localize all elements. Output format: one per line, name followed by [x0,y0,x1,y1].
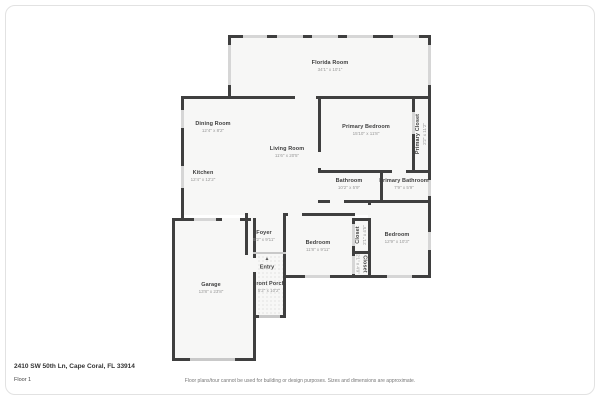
room-label-florida-room: Florida Room 34'1" x 10'1" [312,60,349,73]
door-opening [288,213,302,216]
door-opening [330,200,344,203]
room-label-bedroom-center: Bedroom 11'8" x 9'11" [306,240,331,253]
window-segment [243,35,267,38]
window-segment [228,45,231,85]
room-label-primary-closet: Primary Closet 2'2" x 11'2" [415,114,428,154]
window-segment [181,110,184,128]
door-opening [295,96,316,99]
window-segment [428,45,431,85]
room-label-kitchen: Kitchen 12'4" x 12'2" [191,170,216,183]
door-opening [392,170,406,173]
door-line [259,315,280,318]
room-label-front-porch: Front Porch 5'2" x 10'2" [253,281,285,294]
window-segment [387,275,412,278]
room-label-foyer: Foyer 5'2" x 9'11" [253,230,275,243]
room-label-primary-bathroom: Primary Bathroom 7'9" x 5'9" [379,178,429,191]
room-label-entry: Entry [260,265,275,272]
window-segment [312,35,338,38]
window-segment [347,35,373,38]
wall-segment [172,218,175,361]
footer-disclaimer: Floor plans/tour cannot be used for buil… [0,378,600,384]
door-line [253,252,286,254]
door-opening [318,152,321,168]
room-label-bathroom: Bathroom 10'2" x 5'9" [336,178,363,191]
floor-plan: Florida Room 34'1" x 10'1" Dining Room 1… [0,0,600,400]
window-segment [393,35,419,38]
room-label-living-room: Living Room 11'6" x 20'5" [270,146,304,159]
wall-segment [283,213,286,255]
door-opening [368,205,371,218]
room-label-closet-top: Closet 2'1" x 4'5" [355,225,368,245]
window-segment [194,218,216,221]
room-label-closet-bottom: Closet 2'1" x 4'9" [355,254,368,274]
room-label-dining-room: Dining Room 12'4" x 8'2" [195,121,230,134]
entry-arrow-icon: ▲ [265,256,270,262]
window-segment [277,35,303,38]
footer-address: 2410 SW 50th Ln, Cape Coral, FL 33914 [14,363,135,370]
room-label-bedroom-right: Bedroom 12'9" x 10'3" [385,232,410,245]
window-segment [428,232,431,250]
door-line [190,358,235,361]
room-label-garage: Garage 13'8" x 23'8" [199,282,224,295]
window-segment [305,275,330,278]
room-label-primary-bedroom: Primary Bedroom 15'10" x 11'8" [342,124,390,137]
window-segment [181,166,184,188]
door-opening [222,218,240,221]
wall-segment [245,213,248,255]
door-opening [253,258,256,272]
